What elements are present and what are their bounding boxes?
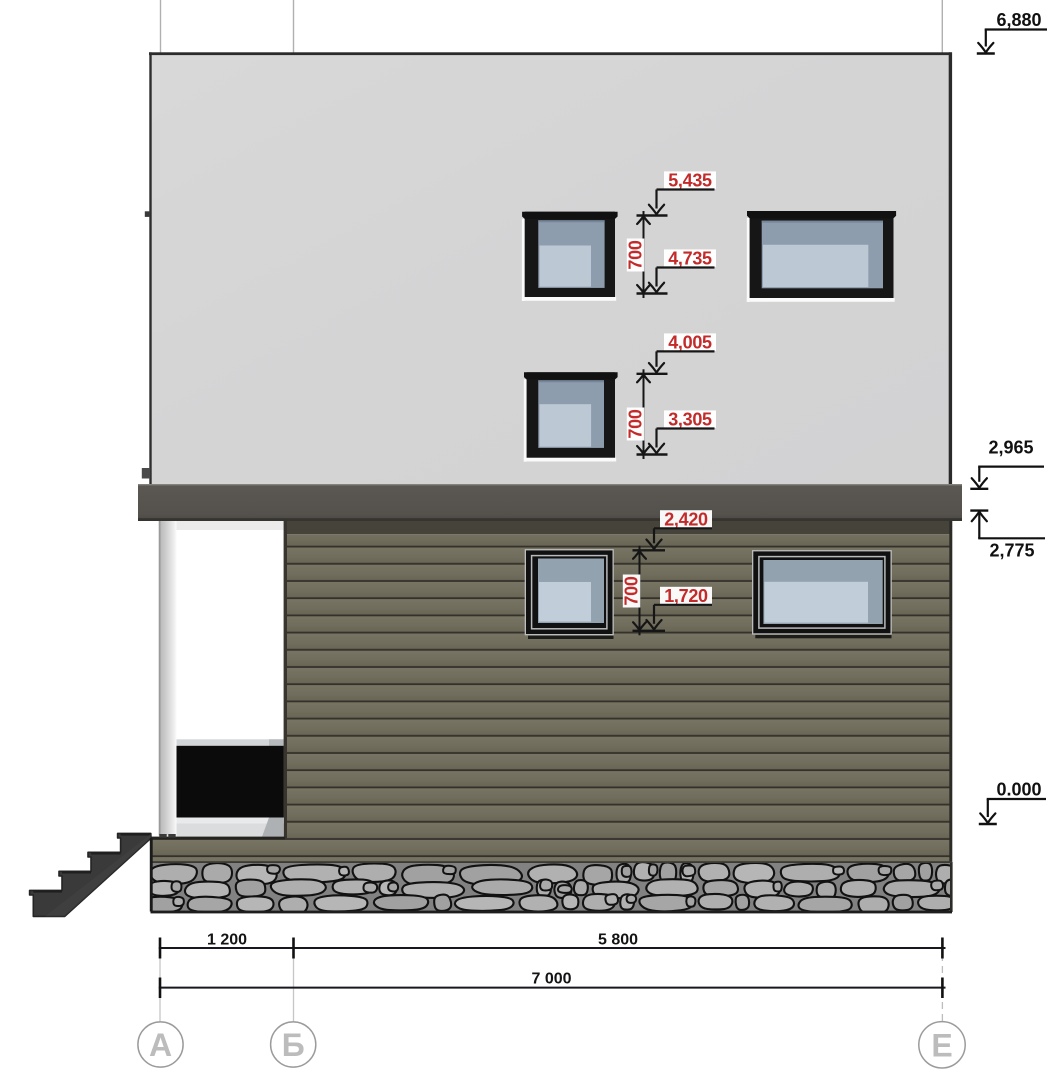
svg-text:700: 700	[622, 576, 642, 605]
svg-text:2,775: 2,775	[989, 541, 1034, 561]
svg-text:Е: Е	[931, 1027, 952, 1063]
svg-text:4,005: 4,005	[668, 332, 712, 352]
svg-text:700: 700	[626, 240, 646, 269]
svg-text:Б: Б	[282, 1027, 305, 1063]
svg-text:700: 700	[626, 409, 646, 438]
svg-text:2,965: 2,965	[988, 438, 1033, 458]
svg-text:А: А	[149, 1027, 172, 1063]
svg-text:6,880: 6,880	[996, 10, 1041, 30]
svg-text:1,720: 1,720	[664, 586, 708, 606]
svg-text:5 800: 5 800	[598, 932, 638, 949]
svg-text:4,735: 4,735	[668, 249, 712, 269]
svg-text:5,435: 5,435	[668, 171, 712, 191]
svg-text:3,305: 3,305	[668, 410, 712, 430]
svg-text:1 200: 1 200	[207, 932, 247, 949]
svg-text:2,420: 2,420	[664, 509, 708, 529]
svg-text:7 000: 7 000	[531, 971, 571, 988]
svg-text:0.000: 0.000	[996, 780, 1041, 800]
